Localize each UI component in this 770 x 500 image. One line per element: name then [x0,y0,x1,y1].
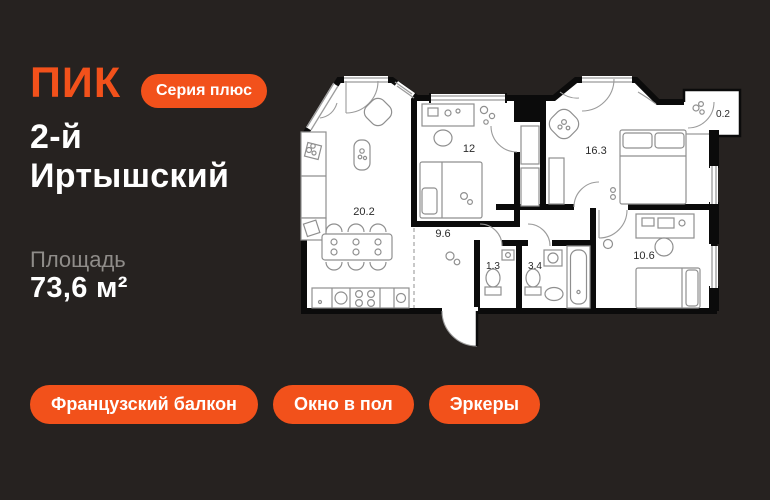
label-wc: 1.3 [486,261,500,272]
feature-floor-window[interactable]: Окно в пол [273,385,414,424]
floor-plan: 20.2 12 9.6 1.3 3.4 16.3 10.6 0.2 [292,66,752,350]
label-bedroom-2: 10.6 [633,250,654,262]
label-bedroom-1: 12 [463,143,475,155]
entrance-door [442,307,478,346]
feature-bay-windows[interactable]: Эркеры [429,385,540,424]
project-title-line2: Иртышский [30,157,229,196]
label-master: 16.3 [585,145,606,157]
area-value: 73,6 м² [30,272,128,305]
feature-french-balcony[interactable]: Французский балкон [30,385,258,424]
area-label: Площадь [30,247,126,273]
pik-logo: ПИК [30,62,121,105]
project-title: 2-й Иртышский [30,118,229,196]
label-kitchen-living: 20.2 [353,206,374,218]
label-bathroom: 3.4 [528,261,542,272]
series-badge: Серия плюс [141,74,267,108]
label-balcony: 0.2 [716,109,730,120]
floor-plan-svg: 20.2 12 9.6 1.3 3.4 16.3 10.6 0.2 [292,66,752,350]
label-hallway: 9.6 [435,228,450,240]
project-title-line1: 2-й [30,118,229,157]
feature-tags: Французский балкон Окно в пол Эркеры [30,385,540,424]
